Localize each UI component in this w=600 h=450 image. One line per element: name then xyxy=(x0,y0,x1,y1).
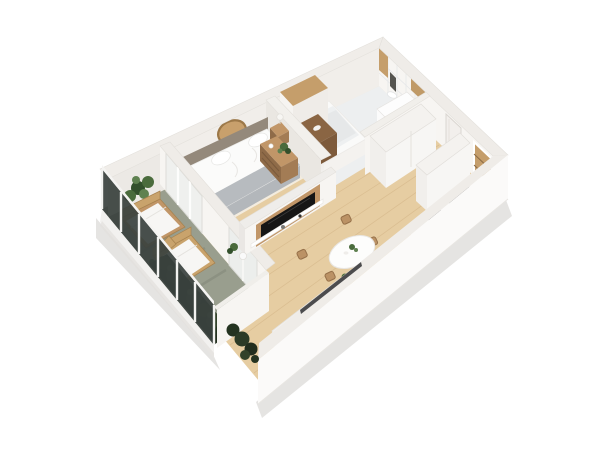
floorplan-3d-render xyxy=(0,0,600,450)
table-lamp xyxy=(277,114,283,120)
floor-vase xyxy=(239,252,246,259)
table-plant xyxy=(349,244,355,250)
bunny-figurine xyxy=(269,144,273,148)
apartment-render-canvas xyxy=(0,0,600,450)
